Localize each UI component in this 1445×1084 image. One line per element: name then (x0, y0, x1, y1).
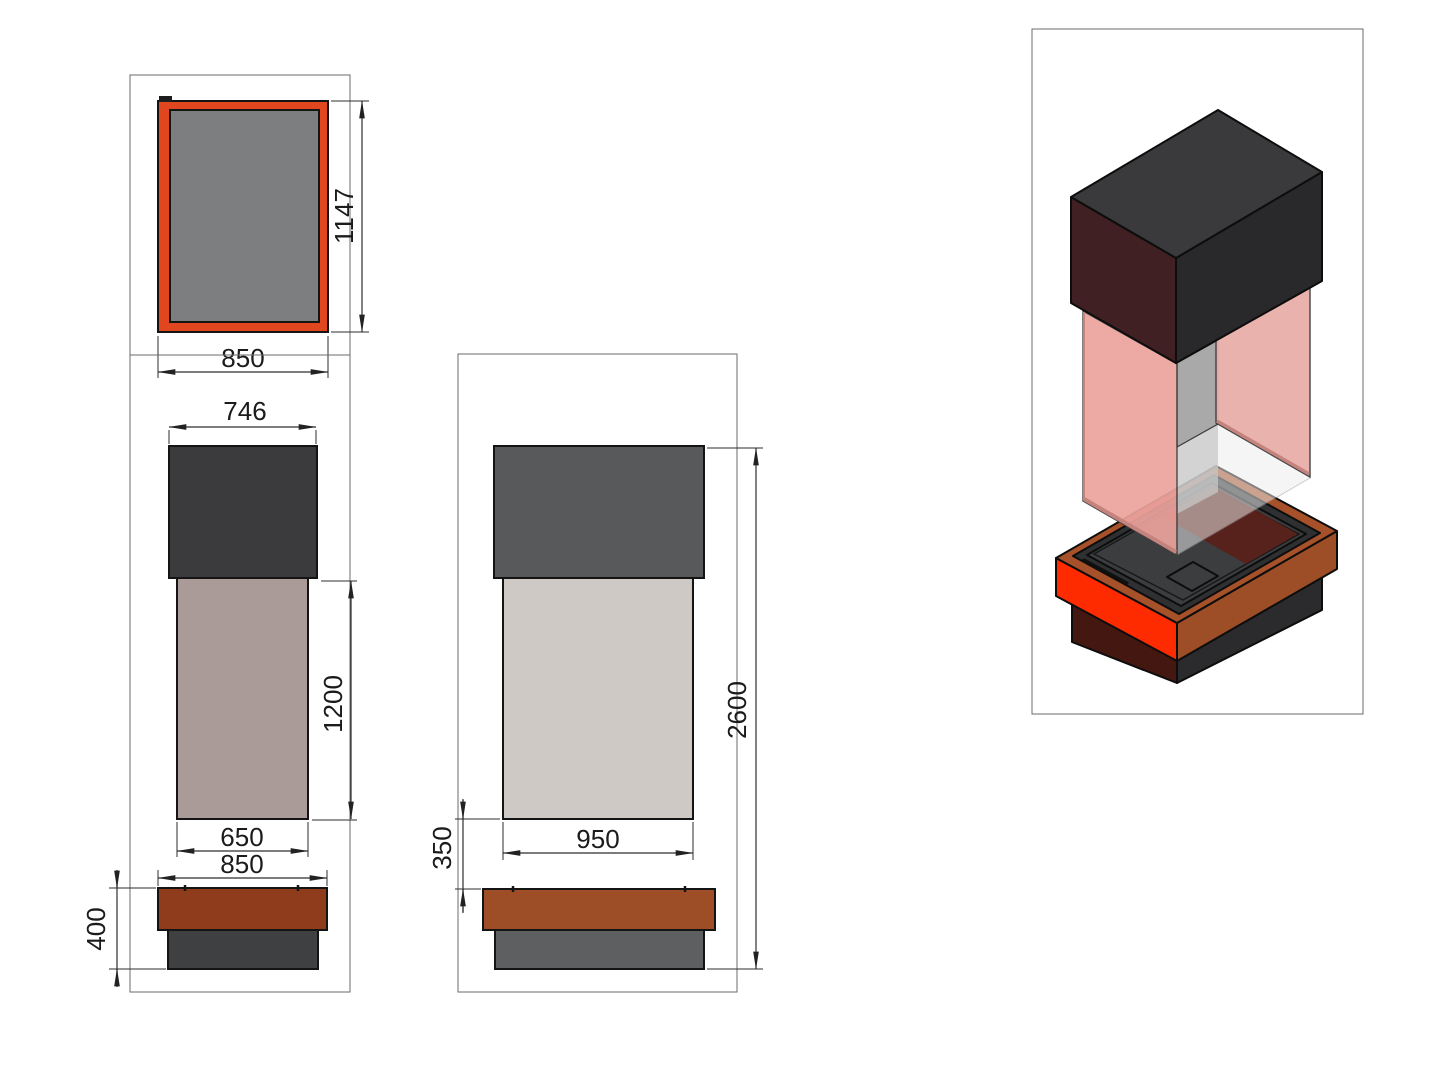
dimension-side-firebox-width: 950 (503, 822, 693, 860)
dim-label-front-base-width: 850 (220, 849, 263, 879)
dim-label-front-hood-width: 746 (223, 396, 266, 426)
side-firebox-column (503, 578, 693, 819)
front-firebox-column (177, 578, 308, 819)
side-base-rust-slab (483, 889, 715, 930)
front-hood (169, 446, 317, 578)
front-view: 746 1200 650 850 (81, 355, 357, 992)
isometric-view (1032, 29, 1363, 714)
plan-corner-tab (159, 96, 172, 102)
dim-label-plan-height: 1147 (329, 188, 359, 244)
side-view: 950 350 2600 (427, 354, 763, 992)
dim-label-side-overall-height: 2600 (722, 681, 752, 739)
plan-glass-panel (170, 110, 319, 322)
front-base-rust-slab (158, 888, 327, 930)
dimension-front-base-width: 850 (158, 849, 327, 886)
front-base-plinth (168, 930, 318, 969)
technical-drawing-page: 1147 850 746 1200 (0, 0, 1445, 1084)
side-base-plinth (495, 930, 704, 969)
dim-label-front-base-height: 400 (81, 907, 111, 950)
dimension-front-hood-width: 746 (169, 396, 316, 444)
dim-label-side-firebox-width: 950 (576, 824, 619, 854)
dim-label-plan-width: 850 (221, 343, 264, 373)
dimension-plan-height: 1147 (329, 101, 369, 332)
drawing-canvas: 1147 850 746 1200 (0, 0, 1445, 1084)
dim-label-front-column-height: 1200 (318, 675, 348, 733)
dimension-plan-width: 850 (158, 336, 328, 378)
plan-view: 1147 850 (130, 75, 369, 378)
side-hood (494, 446, 704, 578)
dim-label-side-gap-height: 350 (427, 826, 457, 869)
dim-label-front-firebox-width: 650 (220, 822, 263, 852)
dimension-front-base-height: 400 (81, 870, 166, 987)
